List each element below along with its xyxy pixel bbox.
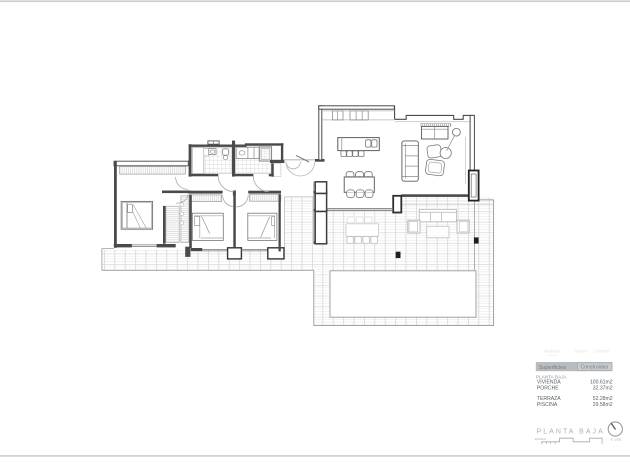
svg-text:ESCALA: ESCALA	[535, 437, 546, 441]
svg-text:52.28m2: 52.28m2	[593, 396, 613, 402]
svg-text:PLANTA BAJA: PLANTA BAJA	[537, 428, 605, 435]
svg-text:TERRAZA: TERRAZA	[537, 396, 561, 402]
svg-text:E: 1/100: E: 1/100	[611, 437, 622, 441]
svg-text:Construi.: Construi.	[594, 349, 611, 354]
svg-text:29.58m2: 29.58m2	[593, 402, 613, 408]
svg-text:Construidas: Construidas	[581, 365, 609, 371]
svg-text:PISCINA: PISCINA	[537, 402, 558, 408]
svg-text:Plano: Plano	[548, 353, 557, 357]
svg-text:Superficies: Superficies	[539, 365, 567, 371]
svg-text:Superf.: Superf.	[575, 349, 589, 354]
svg-text:32.37m2: 32.37m2	[593, 385, 613, 391]
svg-text:PORCHE: PORCHE	[537, 385, 559, 391]
